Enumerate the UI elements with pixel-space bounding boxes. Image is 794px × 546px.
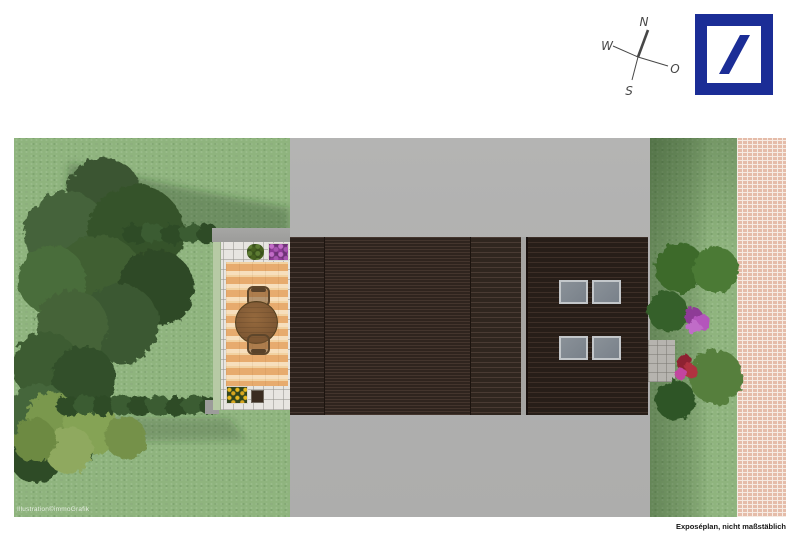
terrace-edge-strip [213, 242, 221, 410]
compass-needle-east [638, 57, 668, 66]
dark-plant-pot [251, 390, 264, 403]
compass-needle-south [632, 57, 638, 80]
annex-roof [526, 237, 648, 415]
skylight [592, 280, 621, 304]
chair-bottom [247, 334, 270, 355]
roof-panel-middle [325, 237, 470, 415]
compass-east-label: O [670, 62, 679, 76]
compass-needle-north [638, 30, 648, 57]
compass-north-label: N [640, 15, 649, 29]
plan-disclaimer-note: Exposéplan, nicht maßstäblich [676, 522, 786, 531]
purple-flower-bush [684, 307, 710, 335]
site-plan-illustration: Illustration©immoGrafik [14, 138, 786, 517]
skylight [559, 336, 588, 360]
garden-wall-top [212, 228, 290, 242]
bottom-hedge [56, 395, 219, 416]
chair-backrest [251, 288, 266, 292]
chair-backrest [251, 349, 266, 353]
red-flower-bush [675, 354, 697, 380]
green-plant-pot [247, 244, 264, 260]
compass-south-label: S [625, 84, 633, 98]
compass-west-label: W [601, 39, 614, 53]
terrace [213, 242, 290, 410]
sunflower-planter [226, 386, 248, 404]
front-garden-shrubs [644, 238, 789, 518]
purple-flower-planter [268, 243, 289, 261]
roof-panel-left [290, 237, 325, 415]
top-hedge [122, 223, 219, 244]
compass-needle-west [613, 46, 638, 57]
roof-panel-right [470, 237, 521, 415]
deutsche-bank-logo-icon [695, 14, 773, 95]
expose-plan-page: N W O S [0, 0, 794, 546]
illustration-credit: Illustration©immoGrafik [17, 506, 89, 513]
skylight [592, 336, 621, 360]
skylight [559, 280, 588, 304]
main-house-roof [290, 237, 521, 415]
compass-rose: N W O S [595, 10, 690, 105]
